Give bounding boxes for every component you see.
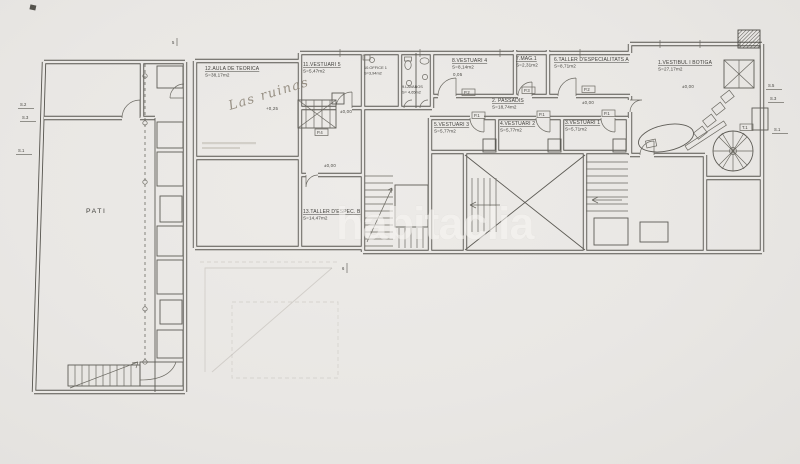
svg-text:S=5,47m2: S=5,47m2: [303, 69, 325, 74]
svg-text:P.3: P.3: [524, 88, 530, 93]
watermark: habitaclia: [336, 198, 536, 249]
level-mark: ±0,00: [324, 163, 336, 168]
door-tag-p1c: P.1: [602, 110, 615, 117]
svg-text:8.VESTUARI 4: 8.VESTUARI 4: [452, 58, 487, 64]
section-tag-left-2: S.3: [22, 115, 29, 120]
svg-text:S=18,74m2: S=18,74m2: [492, 105, 517, 110]
paper-bleed-through: [200, 142, 340, 378]
desk: [636, 119, 696, 156]
svg-text:S=3,94m2: S=3,94m2: [364, 71, 382, 76]
door-tag-p1b: P.1: [537, 111, 550, 118]
room-label-vestuari3: 5.VESTUARI 3 S=5,77m2: [434, 122, 469, 134]
door-arc: [558, 78, 576, 96]
svg-text:P.4: P.4: [317, 130, 323, 135]
svg-text:1.VESTIBUL I BOTIGA: 1.VESTIBUL I BOTIGA: [658, 60, 713, 66]
door-tag-p2b: P.2: [582, 86, 595, 93]
svg-text:S=14,47m2: S=14,47m2: [303, 216, 328, 221]
shaft-hatch: [738, 30, 760, 48]
desk-chair: [645, 139, 656, 148]
room-label-taller-a: 6.TALLER D'ESPECIALITATS A S=8,71m2: [554, 57, 629, 69]
svg-text:S=8,71m2: S=8,71m2: [554, 64, 576, 69]
door-arc: [601, 118, 615, 132]
room-label-office: 10.OFFICE 1 S=3,94m2: [364, 65, 387, 76]
floor-plan-drawing: PATI 12.AULA DE TEORICA S=38,17m2 Las ru…: [0, 0, 800, 464]
pati-courtyard: PATI: [68, 64, 184, 392]
svg-text:S=2,31m2: S=2,31m2: [516, 63, 538, 68]
door-arc: [438, 78, 456, 96]
entry-stair-cross: [298, 100, 336, 128]
svg-text:S=5,77m2: S=5,77m2: [434, 129, 456, 134]
level-mark: ±0,00: [340, 109, 352, 114]
spiral-stair: [713, 131, 753, 171]
svg-text:7.MAG.1: 7.MAG.1: [516, 56, 537, 62]
svg-text:9.LAVABOS: 9.LAVABOS: [402, 84, 423, 89]
floor-plan-photo: PATI 12.AULA DE TEORICA S=38,17m2 Las ru…: [0, 0, 800, 464]
svg-text:T.1: T.1: [742, 125, 748, 130]
svg-text:S= 4,65m2: S= 4,65m2: [402, 90, 421, 95]
door-arc: [536, 118, 550, 132]
room-label-mag1: 7.MAG.1 S=2,31m2: [516, 56, 538, 68]
door-tag-t1: T.1: [740, 124, 753, 131]
svg-text:4.VESTUARI 2: 4.VESTUARI 2: [500, 121, 535, 127]
svg-text:P.1: P.1: [474, 113, 480, 118]
lavabos-fixtures: [404, 53, 429, 108]
svg-text:3.VESTUARI 1: 3.VESTUARI 1: [565, 120, 600, 126]
svg-text:S=5,71m2: S=5,71m2: [565, 127, 587, 132]
svg-text:5.VESTUARI 3: 5.VESTUARI 3: [434, 122, 469, 128]
room-label-lavabos: 9.LAVABOS S= 4,65m2: [402, 84, 423, 95]
door-tag-p4: P.4: [315, 129, 328, 136]
svg-text:S=8,14m2: S=8,14m2: [452, 65, 474, 70]
section-tag-bottom: 6: [342, 266, 345, 271]
svg-text:S=5,77m2: S=5,77m2: [500, 128, 522, 133]
paper-speck: [29, 4, 36, 10]
door-arc: [470, 118, 484, 132]
room-label-passadis: 2. PASSADIS S=18,74m2: [492, 98, 524, 110]
svg-text:12.AULA DE TEORICA: 12.AULA DE TEORICA: [205, 66, 260, 72]
svg-text:P.2: P.2: [584, 87, 590, 92]
section-tag-left-3: S.1: [18, 148, 25, 153]
svg-text:6.TALLER D'ESPECIALITATS A: 6.TALLER D'ESPECIALITATS A: [554, 57, 629, 63]
section-tag-right-2: S.3: [770, 96, 777, 101]
svg-text:2. PASSADIS: 2. PASSADIS: [492, 98, 524, 104]
room-label-pati: PATI: [86, 208, 107, 215]
door-tag-p1a: P.1: [472, 112, 485, 119]
room-label-vestuari1: 3.VESTUARI 1 S=5,71m2: [565, 120, 600, 132]
table: [640, 222, 668, 242]
room-label-vestuari2: 4.VESTUARI 2 S=5,77m2: [500, 121, 535, 133]
display-cabinet: [724, 60, 754, 88]
door-arc: [306, 175, 318, 187]
room-label-vestuari5: 11.VESTUARI 5 S=5,47m2: [303, 62, 341, 74]
svg-text:P.1: P.1: [604, 111, 610, 116]
corridor: 2. PASSADIS S=18,74m2 ±0,00: [492, 98, 642, 112]
room-label-vestuari4: 8.VESTUARI 4 S=8,14m2: [452, 58, 487, 70]
right-stair: [586, 162, 628, 245]
level-mark: ±0,00: [582, 100, 594, 105]
section-tag-right-3: S.1: [774, 127, 781, 132]
level-mark: 0,05: [453, 72, 463, 77]
section-tag-top: 5: [172, 40, 175, 45]
door-arc: [630, 100, 642, 112]
room-label-vestibul: 1.VESTIBUL I BOTIGA S=27,17m2: [658, 60, 713, 72]
door-tag-p3: P.3: [522, 87, 535, 94]
door-arc: [170, 84, 184, 98]
top-rooms: 11.VESTUARI 5 S=5,47m2 10.OFFICE 1 S=3,9…: [303, 53, 629, 108]
svg-text:P.2: P.2: [464, 90, 470, 95]
locker: [332, 93, 344, 104]
pati-stairs: [68, 362, 183, 388]
level-mark: +0,25: [266, 106, 278, 111]
room-label-aula: 12.AULA DE TEORICA S=38,17m2: [205, 66, 260, 78]
svg-text:P.1: P.1: [539, 112, 545, 117]
svg-text:10.OFFICE 1: 10.OFFICE 1: [364, 65, 387, 70]
svg-text:S=38,17m2: S=38,17m2: [205, 73, 230, 78]
door-arc: [122, 100, 140, 118]
svg-text:11.VESTUARI 5: 11.VESTUARI 5: [303, 62, 341, 68]
section-tag-right-1: S.5: [768, 83, 775, 88]
level-mark: ±0,00: [682, 84, 694, 89]
svg-text:S=27,17m2: S=27,17m2: [658, 67, 683, 72]
section-tag-left-1: S.2: [20, 102, 27, 107]
